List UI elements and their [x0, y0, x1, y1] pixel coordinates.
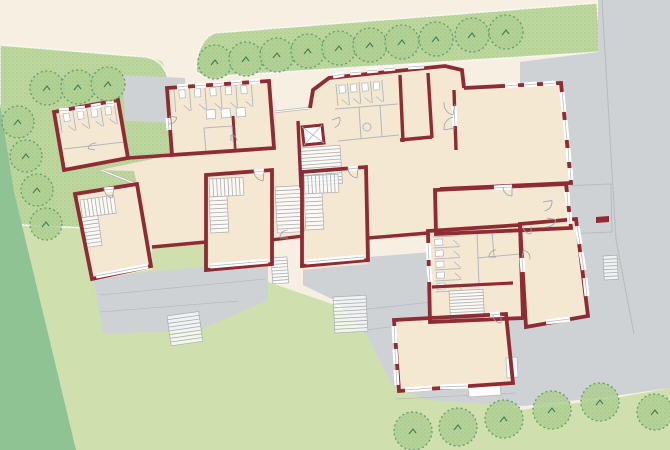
tree	[489, 15, 523, 49]
door-opening	[522, 258, 523, 272]
window	[395, 349, 396, 364]
window	[562, 92, 564, 112]
window	[543, 83, 556, 84]
window	[249, 81, 260, 82]
tree	[455, 18, 489, 52]
tree	[533, 391, 571, 429]
window	[394, 326, 395, 343]
floor-room-south	[394, 314, 513, 391]
tree	[385, 25, 419, 59]
tree	[91, 67, 125, 101]
window	[546, 319, 570, 322]
door-opening	[104, 189, 114, 190]
window	[565, 120, 567, 140]
tree	[394, 412, 432, 450]
tree	[419, 22, 453, 56]
window	[568, 148, 569, 162]
site-plan-layers	[0, 0, 670, 450]
tree	[439, 408, 477, 446]
sink	[236, 107, 246, 117]
elevator	[302, 125, 324, 145]
site-plan-screenshot	[0, 0, 670, 450]
tree	[2, 106, 34, 138]
window	[524, 84, 537, 85]
window	[195, 85, 206, 86]
tree	[291, 34, 325, 68]
tree	[485, 400, 523, 438]
tree	[30, 71, 64, 105]
window	[581, 252, 584, 270]
window	[396, 370, 397, 385]
window	[567, 192, 568, 206]
window	[405, 388, 432, 390]
tree	[353, 28, 387, 62]
tree	[581, 383, 619, 421]
window	[59, 110, 69, 111]
window	[429, 266, 430, 282]
window	[333, 74, 344, 76]
window	[350, 72, 361, 73]
stair-terrace-right-small	[603, 255, 618, 280]
stair-room-a	[209, 177, 244, 197]
tree	[61, 70, 95, 104]
stair-terrace-center	[333, 295, 368, 333]
window	[91, 105, 101, 107]
stair-room-b	[304, 174, 339, 194]
sink	[206, 109, 216, 119]
tree	[229, 42, 263, 76]
window	[384, 68, 395, 69]
sink	[221, 108, 231, 118]
window	[569, 212, 570, 224]
window	[75, 108, 85, 109]
window	[408, 66, 424, 67]
window	[505, 85, 518, 86]
window	[585, 278, 587, 296]
window	[577, 226, 580, 244]
window	[367, 70, 378, 71]
tree	[637, 394, 670, 430]
window	[231, 82, 242, 83]
door-opening	[490, 314, 500, 315]
tree	[198, 45, 232, 79]
window	[177, 86, 188, 87]
stair-central	[275, 186, 304, 233]
tree	[322, 31, 356, 65]
tree	[10, 140, 42, 172]
window	[428, 243, 429, 260]
tree	[21, 174, 53, 206]
tree	[30, 208, 62, 240]
window	[106, 103, 114, 104]
door-opening	[254, 171, 264, 172]
door-opening	[348, 168, 358, 169]
tree	[260, 38, 294, 72]
stair-room-a	[209, 196, 229, 233]
window	[213, 83, 224, 84]
stair-room-b	[304, 193, 324, 230]
floor-plan-canvas	[0, 0, 670, 450]
window	[440, 386, 468, 387]
window	[570, 168, 571, 180]
stair-terrace-left	[167, 312, 203, 346]
terrace-red-bar	[596, 216, 609, 223]
